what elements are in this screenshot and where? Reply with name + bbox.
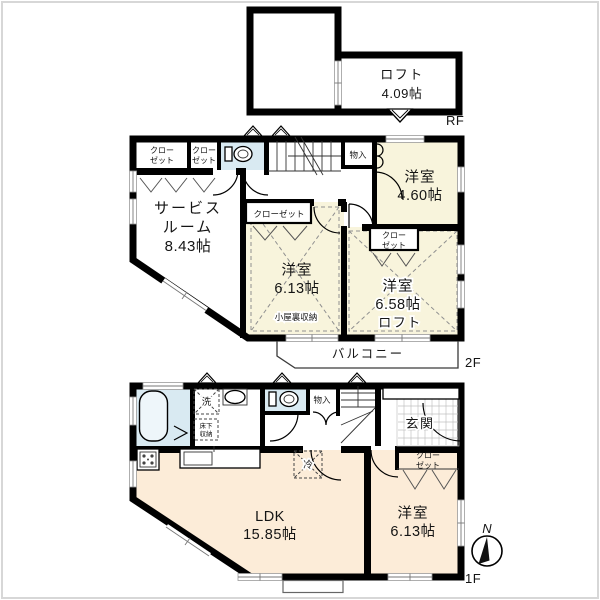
2f-vent-icons (244, 126, 290, 136)
closet-d-label-2: ゼット (382, 240, 406, 250)
stove-icon (137, 449, 159, 470)
balcony-label: バルコニー (332, 347, 404, 361)
room-2f-658-name: 洋室 (383, 278, 414, 295)
porch-step (283, 581, 343, 593)
attic-storage-label: 小屋裏収納 (275, 312, 318, 322)
closet-b-label-2: ゼット (192, 155, 216, 165)
1f-vent-icons (198, 373, 366, 383)
closet-a-label-1: クロー (150, 146, 174, 155)
room-2f-613-name: 洋室 (282, 262, 313, 279)
closet-a-label-2: ゼット (150, 155, 174, 165)
storage-2f-label: 物入 (349, 150, 367, 160)
floor-2f: クロー ゼット クロー ゼット 物入 洋室 4.60帖 サービス ルーム 8.4… (130, 126, 482, 370)
1f-floor-label: 1F (465, 571, 481, 586)
entrance-label: 玄関 (405, 416, 434, 431)
closet-c-label: クローゼット (253, 209, 304, 219)
service-room-size: 8.43帖 (165, 238, 212, 255)
compass-icon: N (472, 521, 502, 566)
rf-loft-size: 4.09帖 (382, 86, 423, 101)
vanity-sink-icon (223, 389, 247, 405)
kitchen-counter-icon (180, 446, 260, 468)
underfloor-label-1: 床下 (200, 421, 214, 430)
room-2f-658-size: 6.58帖 (375, 296, 420, 313)
rf-window (335, 61, 342, 105)
room-1f-name: 洋室 (398, 505, 429, 522)
floor-plan-page: ロフト 4.09帖 RF (0, 0, 600, 600)
room-2f-460-size: 4.60帖 (397, 187, 442, 204)
ldk-name: LDK (255, 509, 285, 525)
bathtub-icon (140, 391, 168, 441)
rf-floor-label: RF (446, 113, 464, 128)
underfloor-label-2: 収納 (200, 429, 213, 438)
closet-2f-top-hangers (140, 178, 215, 192)
compass-north-label: N (482, 521, 492, 536)
toilet-2f-icon (225, 147, 252, 162)
closet-1f-label-1: クロー (416, 451, 440, 460)
toilet-1f-icon (269, 392, 298, 407)
room-2f-613-size: 6.13帖 (274, 280, 319, 297)
closet-1f-label-2: ゼット (416, 460, 440, 470)
2f-floor-label: 2F (465, 355, 481, 370)
floor-1f: N 洗 床下 収納 物入 玄関 クロー ゼット 冷 LDK 15.85帖 洋室 … (130, 373, 503, 593)
floor-plan-drawing: ロフト 4.09帖 RF (0, 0, 600, 600)
stairs-1f-icon (341, 386, 375, 443)
service-room-label-2: ルーム (163, 219, 214, 236)
shoe-cabinet (383, 388, 459, 399)
service-room-label-1: サービス (154, 200, 222, 217)
room-2f-460-name: 洋室 (405, 169, 436, 186)
storage-1f-label: 物入 (313, 395, 331, 405)
ldk-size: 15.85帖 (243, 526, 297, 543)
rf-outer-wall (250, 10, 459, 112)
loft-2f-label: ロフト (378, 315, 422, 330)
rf-loft-name: ロフト (380, 67, 424, 82)
room-1f-size: 6.13帖 (390, 523, 435, 540)
floor-rf: ロフト 4.09帖 RF (250, 10, 464, 128)
stairs-2f-icon (268, 137, 341, 175)
fridge-label: 冷 (303, 459, 313, 471)
closet-b-label-1: クロー (192, 146, 216, 155)
closet-d-label-1: クロー (382, 231, 406, 240)
laundry-label: 洗 (202, 396, 212, 408)
